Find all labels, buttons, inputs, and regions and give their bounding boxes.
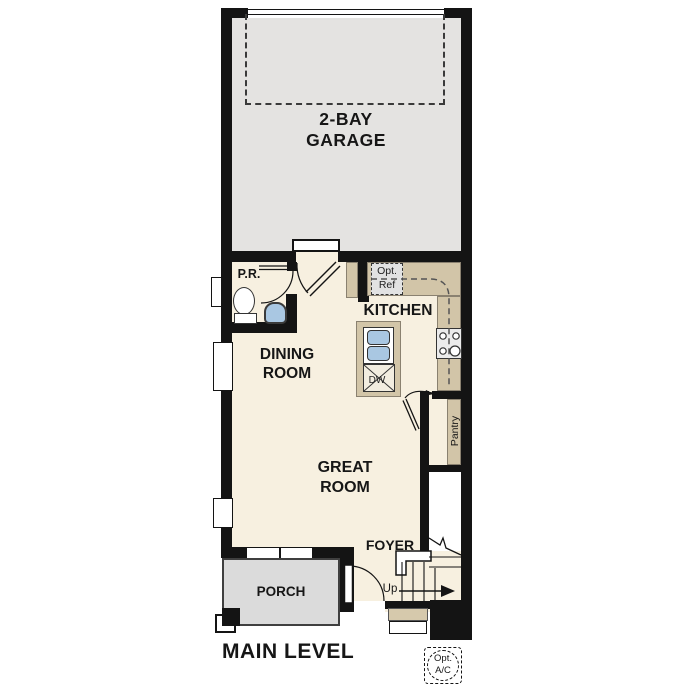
powder-room-label: P.R.	[233, 267, 265, 281]
great-room-label: GREAT ROOM	[275, 458, 415, 498]
dishwasher-label: DW	[363, 375, 391, 386]
main-level-title: MAIN LEVEL	[222, 640, 382, 664]
stair-treads	[402, 557, 461, 607]
optional-refrigerator-label: Opt. Ref	[371, 264, 403, 292]
optional-ac-label: Opt. A/C	[424, 653, 462, 677]
garage-entry-door	[297, 262, 340, 296]
foyer-label: FOYER	[352, 537, 428, 553]
dining-room-label: DINING ROOM	[237, 345, 337, 383]
front-door	[345, 565, 385, 603]
floor-plan: 2-BAY GARAGE P.R. Opt. Ref KITCHEN DININ…	[0, 0, 687, 687]
up-arrow-icon	[399, 585, 455, 597]
porch-label: PORCH	[228, 584, 334, 599]
garage-label: 2-BAY GARAGE	[246, 109, 446, 151]
pantry-label: Pantry	[449, 403, 461, 459]
stove-burners-icon	[440, 333, 460, 356]
up-label: Up	[380, 583, 400, 595]
kitchen-label: KITCHEN	[348, 302, 448, 320]
stair-break-line	[429, 538, 461, 555]
upper-cabinet-dashed-line	[371, 279, 449, 388]
pantry-door	[403, 390, 434, 431]
plan-linework	[0, 0, 687, 687]
